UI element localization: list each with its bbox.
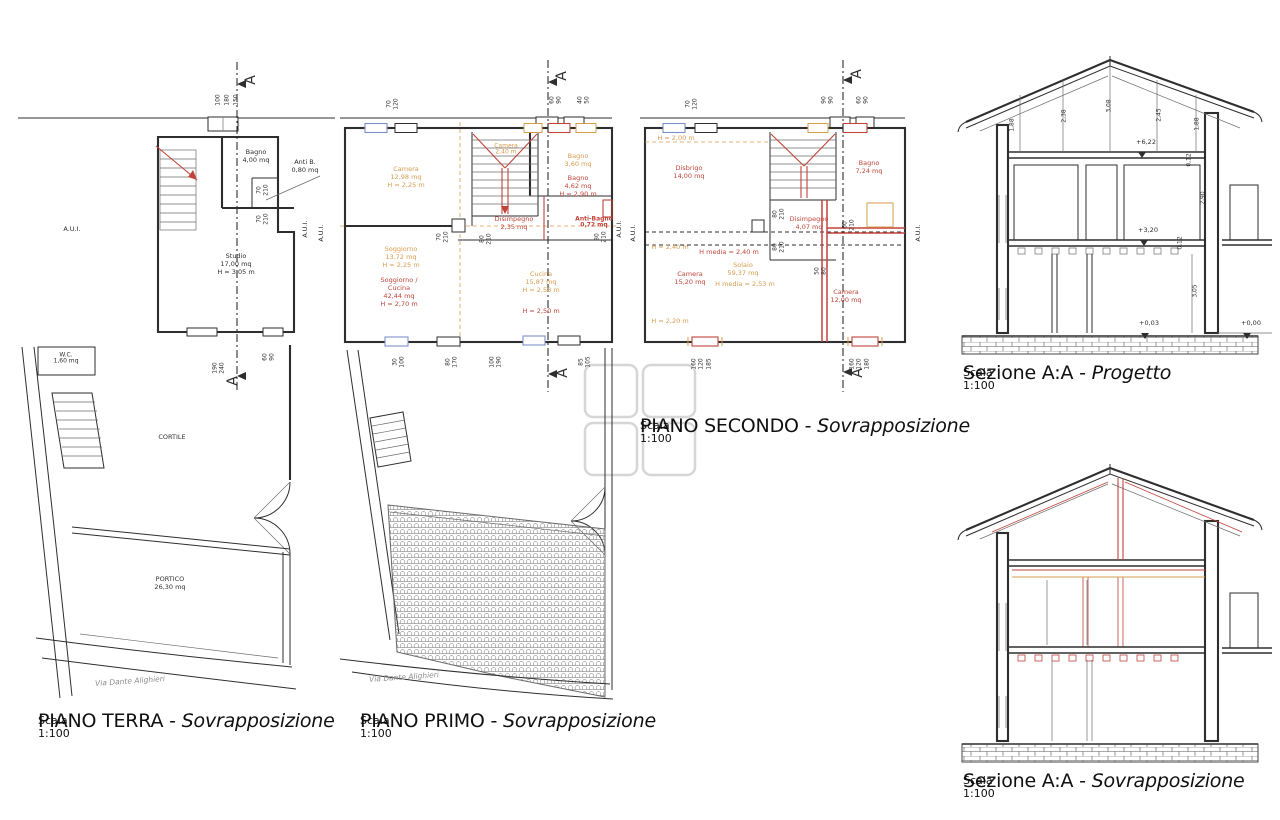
title-em: Sovrapposizione [817,415,970,437]
dim-label: 1,88 [1010,118,1017,131]
room-label-wc: W.C. 1,60 mq [54,353,79,366]
dim-label: 180 [225,94,232,105]
dim-label: 150 [234,94,241,105]
dim-label: 80 210 [594,231,607,242]
dim-label: 3,08 [1107,99,1114,112]
room-label-disimpegno: Disimpegno 2,35 mq [495,216,534,232]
room-label-soggiorno-old: Soggiorno 13,72 mq H = 2,25 m [382,246,419,270]
sezione-sovrapposizione-drawing [958,464,1272,762]
aui-label-primo-2: A.U.I. [630,224,638,241]
dim-label: 100 [216,94,223,105]
title-em: Sovrapposizione [182,710,335,732]
aui-label-secondo: A.U.I. [915,224,923,241]
dim-label: 60 90 [262,353,275,361]
dim-label: 100 190 [489,356,502,367]
aui-label-right-1: A.U.I. [302,220,310,237]
dim-label: 90 90 [821,96,834,104]
room-label-camera-old: Camera 12,98 mq H = 2,25 m [387,166,424,190]
dim-label: 70 210 [256,184,269,195]
room-label-disbrigo: Disbrigo 14,00 mq [673,165,704,181]
section-marker-a: A [849,69,865,79]
dim-label: 2,45 [1157,108,1164,121]
title-em: Progetto [1092,362,1172,384]
room-label-soggiorno-cucina-new: Soggiorno / Cucina 42,44 mq H = 2,70 m [380,277,417,309]
room-label-disimpegno-secondo: Disimpegno 4,07 mq [790,216,829,232]
dim-label: 60 90 [856,96,869,104]
dim-label: 80 210 [479,233,492,244]
dim-label: 80 170 [445,356,458,367]
dim-label: 60 90 [549,96,562,104]
room-label-bagno-secondo: Bagno 7,24 mq [856,160,883,176]
dim-label: 40 50 [577,96,590,104]
page-title: Sezione A:A - Sovrapposizione [963,770,1245,792]
aui-label-right-2: A.U.I. [318,224,326,241]
scale-label: Scala 1:100 [360,714,392,740]
dim-label: 70 210 [436,231,449,242]
architectural-sheet: Bagno 4,00 mq Anti B. 0,80 mq Studio 17,… [0,0,1280,820]
dim-label: 1,88 [1195,117,1202,130]
room-label-camera1: Camera 15,20 mq [674,271,705,287]
drawing-linework [0,0,1280,820]
title-em: Sovrapposizione [1092,770,1245,792]
dim-label: 70 210 [256,213,269,224]
height-label-old: H media = 2,53 m [715,281,775,289]
dim-label: 190 240 [212,362,225,373]
level-label: +3,20 [1138,227,1158,235]
room-label-portico: PORTICO 26,30 mq [154,576,185,592]
level-label: +0,00 [1241,320,1261,328]
stairs-cortile [52,393,104,468]
height-label-new: H media = 2,40 m [699,249,759,257]
dim-label: 2,38 [1062,109,1069,122]
room-label-bagno-old: Bagno 3,60 mq [565,153,592,169]
section-marker-a: A [243,75,259,85]
scale-label: Scala 1:100 [38,714,70,740]
level-label: +0,03 [1139,320,1159,328]
room-label-solaio-old: Solaio 59,37 mq [727,262,758,278]
room-label-cucina-old: Cucina 15,87 mq H = 2,58 m [522,271,559,295]
page-title: PIANO PRIMO - Sovrapposizione [360,710,656,732]
dim-label: 2,90 [1201,191,1208,204]
section-marker-a: A [225,376,241,386]
joist-marks-overlay [1018,655,1178,661]
piano-secondo-drawing [640,60,905,392]
scale-label: Scala 1:100 [963,366,995,392]
room-label-studio: Studio 17,00 mq H = 3,05 m [217,253,254,277]
dim-label: 85 105 [578,356,591,367]
sezione-progetto-drawing [958,56,1272,354]
room-label-cortile: CORTILE [158,434,185,442]
section-marker-a: A [555,368,571,378]
height-label-cucina-new: H = 2,50 m [522,308,559,316]
section-marker-a: A [554,71,570,81]
dim-label: 3,05 [1193,284,1200,297]
dim-label: 70 120 [386,98,399,109]
level-label: +6,22 [1136,139,1156,147]
height-label-old: H = 2,40 m [651,244,688,252]
room-label-bagno-new: Bagno 4,62 mq H = 2,90 m [559,175,596,199]
dim-label: 60 210 [842,219,855,230]
room-label-camera2: Camera 12,00 mq [830,289,861,305]
aui-label-primo-1: A.U.I. [616,220,624,237]
height-label-old: H = 2,20 m [651,318,688,326]
stairs-primo-esterno [370,412,411,467]
scale-label: Scala 1:100 [963,774,995,800]
scale-label: Scala 1:100 [640,419,672,445]
dim-label: 30 100 [392,356,405,367]
dim-label: 0,12 [1187,153,1194,166]
height-label-old: H = 2,00 m [657,135,694,143]
joist-marks [1018,248,1178,254]
dim-label: 80 210 [772,241,785,252]
dim-label: 50 80 [814,267,827,275]
dim-label: 70 120 [685,98,698,109]
room-label-anti-b: Anti B. 0,80 mq [292,159,319,175]
room-label-camera2-old: Camera 2,40 m [494,144,518,157]
room-label-anti-bagno: Anti-Bagno 0,72 mq [575,217,613,230]
page-title: PIANO SECONDO - Sovrapposizione [640,415,970,437]
page-title: PIANO TERRA - Sovrapposizione [38,710,335,732]
dim-label: 185 [707,358,714,369]
section-marker-a: A [850,368,866,378]
aui-label-left: A.U.I. [63,226,80,234]
piano-terra-drawing [18,62,335,698]
dim-label: 80 210 [772,208,785,219]
title-em: Sovrapposizione [503,710,656,732]
dim-label: 160 120 [691,358,704,369]
room-label-bagno-terra: Bagno 4,00 mq [243,149,270,165]
dim-label: 0,12 [1178,236,1185,249]
